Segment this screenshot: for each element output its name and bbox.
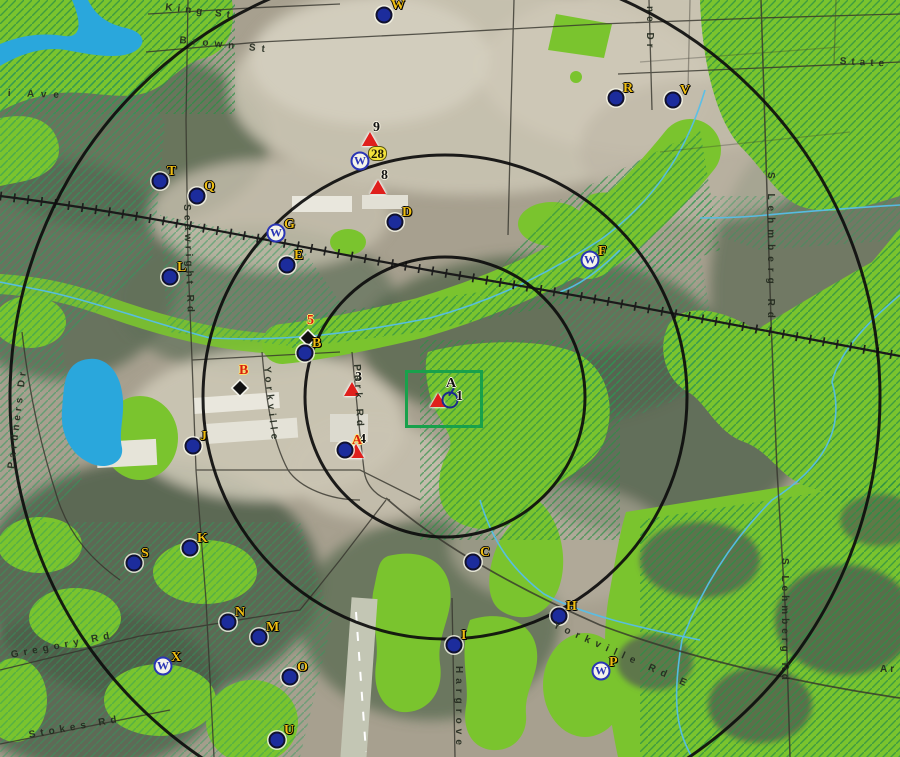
blue-site-marker-C[interactable] bbox=[465, 554, 482, 571]
marker-label: G bbox=[284, 218, 295, 232]
marker-label: T bbox=[167, 165, 176, 179]
diamond-marker-B[interactable] bbox=[233, 381, 247, 395]
aerial-wetland-map: 9834A15BWRVTQDELBAJKSNMOUCHIW28WGWFWXWPK… bbox=[0, 0, 900, 757]
blue-site-marker-B[interactable] bbox=[297, 345, 314, 362]
blue-site-marker-O[interactable] bbox=[282, 669, 299, 686]
marker-label: 5 bbox=[307, 314, 314, 328]
well-marker-X[interactable]: W bbox=[154, 657, 173, 676]
marker-label: X bbox=[171, 651, 181, 665]
marker-label: O bbox=[297, 661, 308, 675]
street-label: ne Dr bbox=[644, 6, 655, 52]
blue-site-marker-V[interactable] bbox=[665, 92, 682, 109]
well-marker-F[interactable]: W bbox=[581, 251, 600, 270]
blue-site-marker-M[interactable] bbox=[251, 629, 268, 646]
street-label: Yorkville Rd E bbox=[552, 620, 694, 691]
street-label: Gregory Rd bbox=[10, 630, 115, 661]
marker-label: W bbox=[391, 0, 405, 13]
blue-site-marker-H[interactable] bbox=[551, 608, 568, 625]
blue-site-marker-D[interactable] bbox=[387, 214, 404, 231]
marker-label: Q bbox=[204, 180, 215, 194]
street-label: Yorkville bbox=[261, 366, 280, 444]
marker-label: F bbox=[598, 245, 607, 259]
street-label: Brown St bbox=[179, 35, 272, 56]
street-label: Park Rd bbox=[351, 364, 365, 430]
well-marker-G[interactable]: W bbox=[267, 224, 286, 243]
blue-site-marker-R[interactable] bbox=[608, 90, 625, 107]
red-triangle-marker-9[interactable] bbox=[362, 132, 378, 146]
marker-label: K bbox=[197, 532, 208, 546]
blue-site-marker-T[interactable] bbox=[152, 173, 169, 190]
marker-label: R bbox=[623, 82, 633, 96]
marker-label: N bbox=[235, 606, 245, 620]
red-triangle-marker-3[interactable] bbox=[344, 382, 360, 396]
marker-label: U bbox=[284, 724, 294, 738]
street-label: S Lehmberg Rd bbox=[765, 172, 776, 324]
blue-site-marker-K[interactable] bbox=[182, 540, 199, 557]
marker-label: L bbox=[177, 261, 186, 275]
blue-site-marker-Q[interactable] bbox=[189, 188, 206, 205]
marker-label: J bbox=[200, 430, 207, 444]
street-label: S Lehmberg Rd bbox=[779, 558, 790, 684]
marker-label: H bbox=[566, 600, 577, 614]
marker-label: M bbox=[266, 621, 279, 635]
site-well-ring-icon bbox=[442, 392, 459, 409]
well-marker-P[interactable]: W bbox=[592, 662, 611, 681]
blue-site-marker-W[interactable] bbox=[376, 7, 393, 24]
street-label: King St bbox=[165, 2, 236, 21]
street-label: Seawright Rd bbox=[181, 204, 196, 316]
street-label: Ar bbox=[880, 664, 897, 675]
blue-site-marker-N[interactable] bbox=[220, 614, 237, 631]
street-label: Pardners Dr bbox=[6, 368, 29, 470]
street-label: i Ave bbox=[8, 88, 67, 101]
marker-label: S bbox=[141, 547, 149, 561]
marker-label: 28 bbox=[368, 146, 387, 161]
blue-site-marker-E[interactable] bbox=[279, 257, 296, 274]
marker-label: V bbox=[680, 84, 690, 98]
street-label: Hargrove bbox=[453, 666, 464, 750]
well-marker-28[interactable]: W bbox=[351, 152, 370, 171]
diamond-marker-5[interactable] bbox=[301, 331, 315, 345]
red-triangle-marker-8[interactable] bbox=[370, 180, 386, 194]
street-label: State bbox=[839, 56, 889, 70]
blue-site-marker-J[interactable] bbox=[185, 438, 202, 455]
blue-site-marker-L[interactable] bbox=[162, 269, 179, 286]
marker-label: C bbox=[480, 546, 490, 560]
blue-site-marker-A[interactable] bbox=[337, 442, 354, 459]
street-label: Stokes Rd bbox=[28, 714, 122, 741]
marker-label: E bbox=[294, 249, 303, 263]
blue-site-marker-U[interactable] bbox=[269, 732, 286, 749]
marker-label: B bbox=[239, 364, 248, 378]
blue-site-marker-S[interactable] bbox=[126, 555, 143, 572]
blue-site-marker-I[interactable] bbox=[446, 637, 463, 654]
marker-label: P bbox=[609, 656, 618, 670]
marker-label: D bbox=[402, 206, 412, 220]
marker-overlay: 9834A15BWRVTQDELBAJKSNMOUCHIW28WGWFWXWPK… bbox=[0, 0, 900, 757]
